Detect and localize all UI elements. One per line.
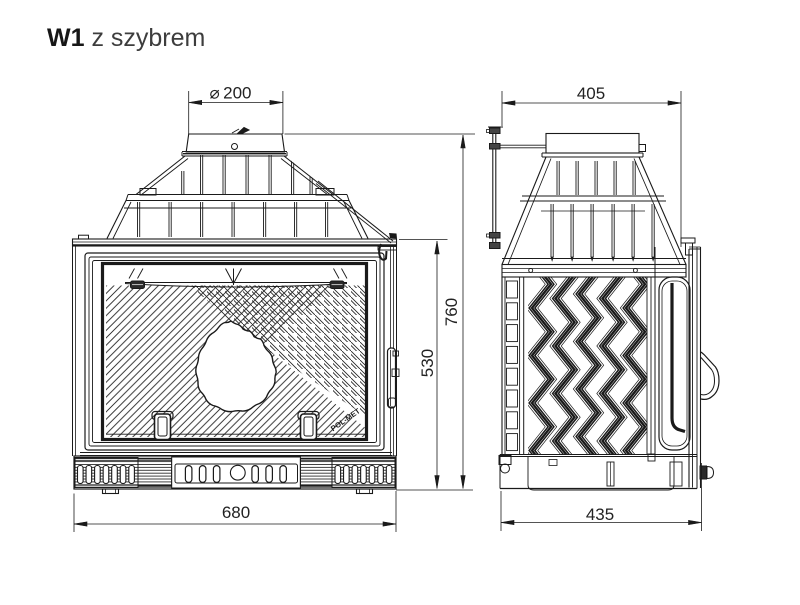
svg-text:⌀ 200: ⌀ 200 <box>209 84 251 103</box>
svg-text:530: 530 <box>418 349 437 377</box>
svg-text:W1 z szybrem: W1 z szybrem <box>47 24 205 52</box>
svg-text:680: 680 <box>222 503 250 522</box>
svg-text:760: 760 <box>442 298 461 326</box>
svg-text:405: 405 <box>577 84 605 103</box>
svg-text:435: 435 <box>586 505 614 524</box>
